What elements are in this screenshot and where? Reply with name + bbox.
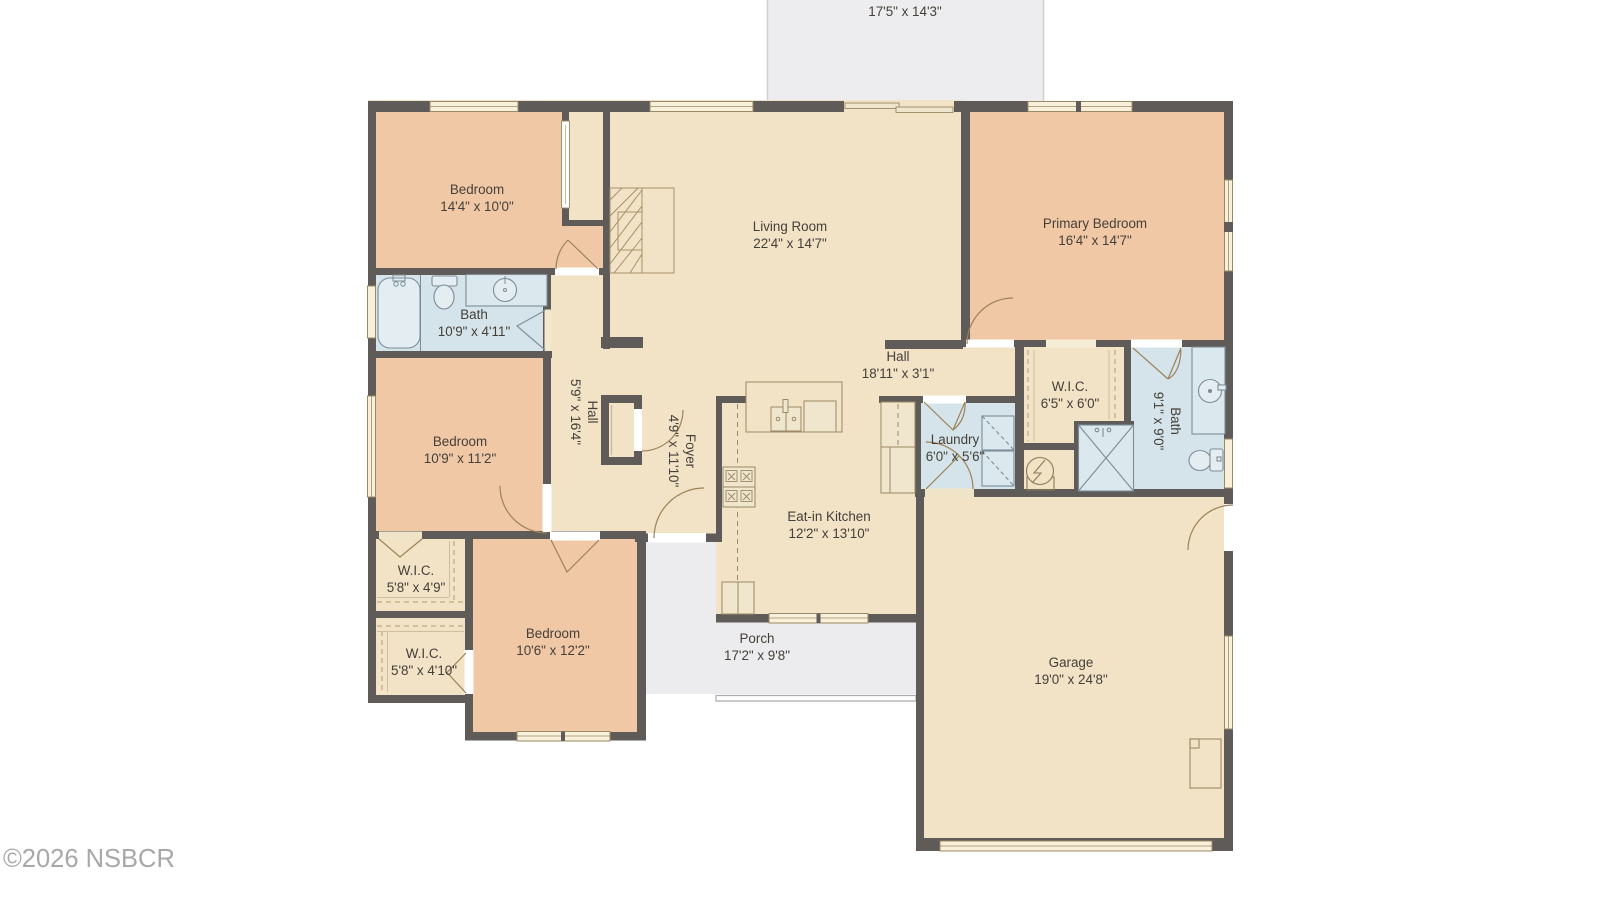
svg-text:Porch: Porch xyxy=(740,631,775,646)
svg-text:22'4" x 14'7": 22'4" x 14'7" xyxy=(753,236,827,251)
svg-text:Bath: Bath xyxy=(460,307,488,322)
svg-text:10'6" x 12'2": 10'6" x 12'2" xyxy=(516,643,590,658)
svg-text:16'4" x 14'7": 16'4" x 14'7" xyxy=(1058,233,1132,248)
svg-text:6'5" x 6'0": 6'5" x 6'0" xyxy=(1041,396,1100,411)
svg-text:Hall: Hall xyxy=(585,400,600,423)
svg-text:Hall: Hall xyxy=(886,349,909,364)
svg-text:Garage: Garage xyxy=(1049,655,1094,670)
svg-text:Laundry: Laundry xyxy=(931,432,980,447)
svg-text:4'9" x 11'10": 4'9" x 11'10" xyxy=(666,415,681,488)
svg-text:10'9" x 4'11": 10'9" x 4'11" xyxy=(438,324,511,339)
svg-text:6'0" x 5'6": 6'0" x 5'6" xyxy=(926,449,985,464)
svg-text:5'8" x 4'9": 5'8" x 4'9" xyxy=(387,580,446,595)
svg-text:W.I.C.: W.I.C. xyxy=(398,563,434,578)
svg-text:17'2" x 9'8": 17'2" x 9'8" xyxy=(724,648,790,663)
svg-text:5'9" x 16'4": 5'9" x 16'4" xyxy=(568,379,583,445)
svg-text:Bedroom: Bedroom xyxy=(526,626,580,641)
svg-text:Primary Bedroom: Primary Bedroom xyxy=(1043,216,1147,231)
svg-text:9'1" x 9'0": 9'1" x 9'0" xyxy=(1151,392,1166,451)
svg-text:Bedroom: Bedroom xyxy=(433,434,487,449)
svg-text:Eat-in Kitchen: Eat-in Kitchen xyxy=(787,509,870,524)
svg-text:17'5" x 14'3": 17'5" x 14'3" xyxy=(868,4,942,19)
svg-text:©2026 NSBCR: ©2026 NSBCR xyxy=(3,845,175,873)
svg-text:Bath: Bath xyxy=(1168,407,1183,435)
svg-text:5'8" x 4'10": 5'8" x 4'10" xyxy=(391,663,457,678)
svg-text:W.I.C.: W.I.C. xyxy=(1052,379,1088,394)
svg-text:Foyer: Foyer xyxy=(683,434,698,469)
svg-text:Bedroom: Bedroom xyxy=(450,182,504,197)
svg-text:18'11" x 3'1": 18'11" x 3'1" xyxy=(862,366,935,381)
svg-text:14'4" x 10'0": 14'4" x 10'0" xyxy=(440,199,514,214)
svg-text:Living Room: Living Room xyxy=(753,219,827,234)
svg-text:12'2" x 13'10": 12'2" x 13'10" xyxy=(789,526,870,541)
svg-text:19'0" x 24'8": 19'0" x 24'8" xyxy=(1034,672,1108,687)
svg-text:W.I.C.: W.I.C. xyxy=(406,646,442,661)
svg-text:10'9" x 11'2": 10'9" x 11'2" xyxy=(424,451,497,466)
